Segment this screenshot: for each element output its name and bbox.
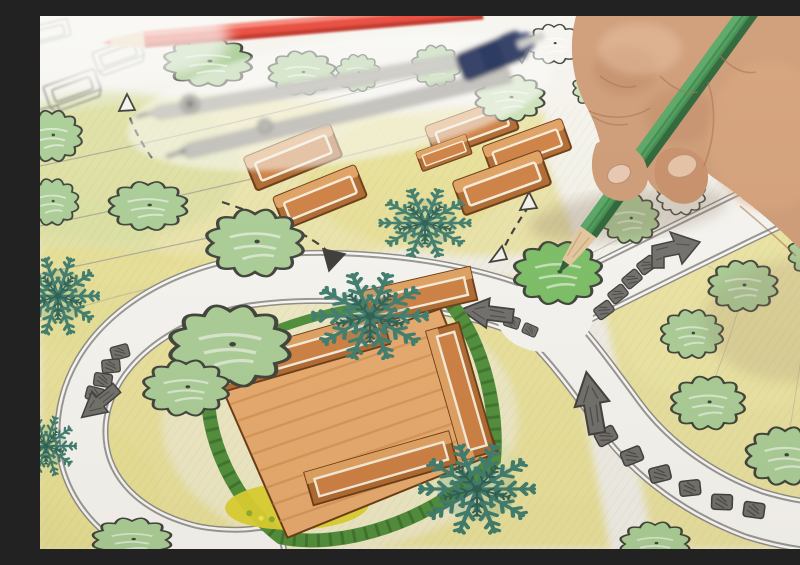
tree-being-colored — [514, 242, 601, 304]
drawing-canvas — [40, 16, 800, 549]
photo-landscape-plan: Close-up photograph of a designer's hand… — [40, 16, 800, 549]
